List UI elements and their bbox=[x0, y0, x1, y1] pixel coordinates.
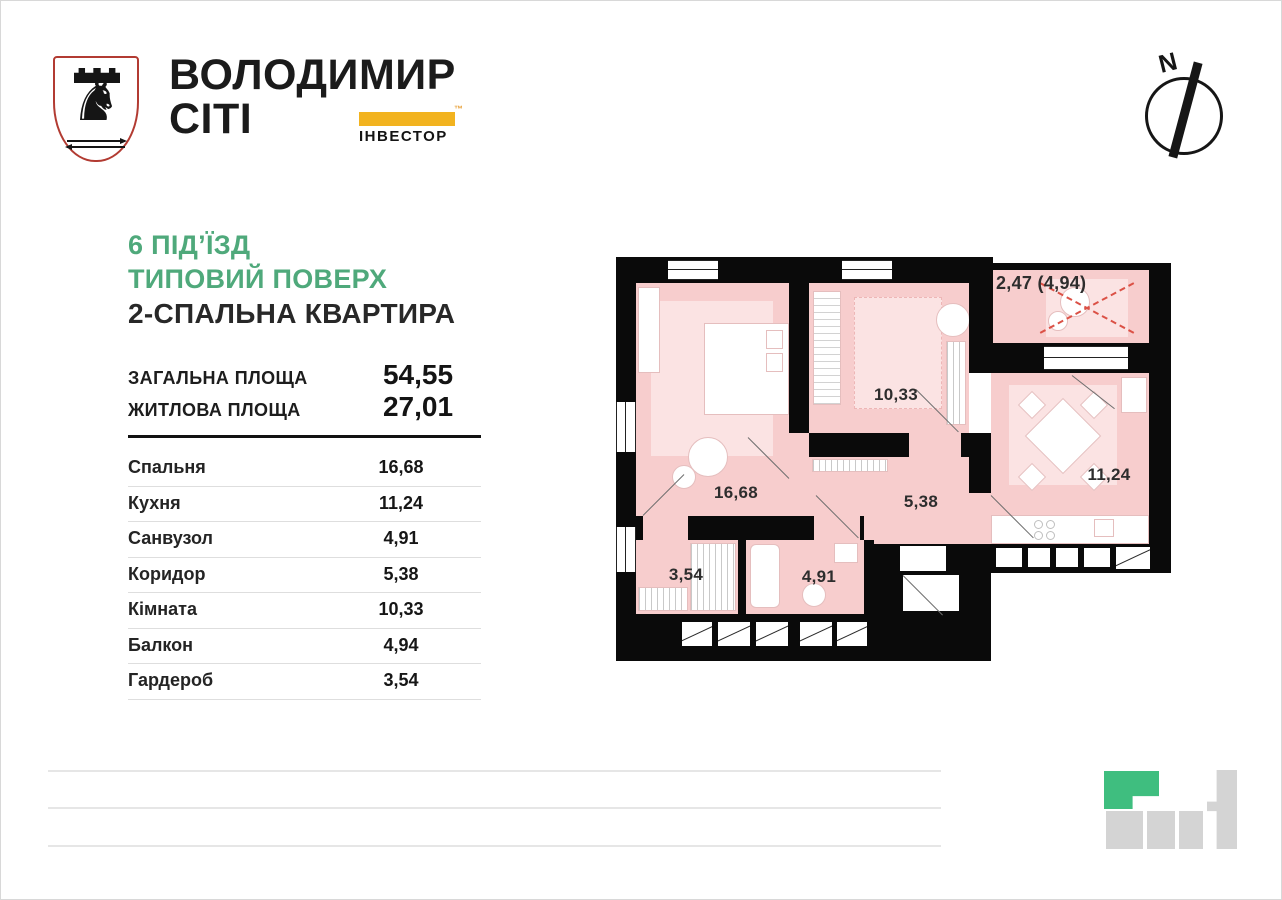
vent bbox=[1028, 548, 1050, 567]
window bbox=[842, 260, 892, 280]
wall bbox=[993, 263, 1171, 270]
living-room-chair bbox=[936, 303, 970, 337]
table-row: Гардероб 3,54 bbox=[128, 664, 481, 700]
plan-detail bbox=[1034, 531, 1043, 540]
plan-detail bbox=[1046, 520, 1055, 529]
living-area-value: 27,01 bbox=[363, 391, 473, 423]
room-name: Коридор bbox=[128, 558, 205, 591]
bed-pillow bbox=[766, 353, 783, 372]
vent bbox=[996, 548, 1022, 567]
wall bbox=[789, 283, 809, 433]
fridge bbox=[1121, 377, 1147, 413]
wall bbox=[616, 257, 636, 402]
floor-plan-drawing: 16,68 10,33 2,47 (4,94) 11,24 5,38 3,54 … bbox=[616, 257, 1171, 661]
north-compass: N bbox=[1141, 47, 1237, 163]
corridor-area-label: 5,38 bbox=[871, 492, 971, 512]
plan-detail bbox=[1046, 531, 1055, 540]
total-area-value: 54,55 bbox=[363, 359, 473, 391]
room-name: Санвузол bbox=[128, 522, 213, 555]
wall bbox=[809, 257, 976, 283]
shaft bbox=[718, 622, 750, 646]
wall bbox=[616, 452, 636, 527]
wall bbox=[738, 540, 746, 614]
room-area-value: 4,91 bbox=[346, 522, 456, 555]
balcony-door bbox=[1044, 346, 1128, 370]
vent bbox=[1084, 548, 1110, 567]
hallway-cabinet bbox=[812, 459, 888, 472]
entrance-landing bbox=[903, 575, 959, 611]
table-row: Кухня 11,24 bbox=[128, 487, 481, 523]
note-line bbox=[48, 770, 941, 772]
toilet bbox=[834, 543, 858, 563]
room-name: Спальня bbox=[128, 451, 206, 484]
wall bbox=[969, 433, 991, 493]
room-area-value: 4,94 bbox=[346, 629, 456, 662]
room-name: Кімната bbox=[128, 593, 197, 626]
arrow-left-icon bbox=[67, 146, 125, 148]
shaft bbox=[1116, 547, 1150, 569]
entrance-opening bbox=[900, 546, 946, 571]
balcony-area-label: 2,47 (4,94) bbox=[996, 273, 1126, 294]
room-area-value: 10,33 bbox=[346, 593, 456, 626]
vent bbox=[1056, 548, 1078, 567]
room-area-value: 3,54 bbox=[346, 664, 456, 697]
table-row: Коридор 5,38 bbox=[128, 558, 481, 594]
table-row: Балкон 4,94 bbox=[128, 629, 481, 665]
logo-gray-block bbox=[1106, 811, 1143, 849]
apartment-info-panel: 6 ПІД’ЇЗД ТИПОВИЙ ПОВЕРХ 2-СПАЛЬНА КВАРТ… bbox=[128, 1, 481, 721]
room-area-value: 11,24 bbox=[346, 487, 456, 520]
total-area-label: ЗАГАЛЬНА ПЛОЩА bbox=[128, 363, 308, 393]
shaft bbox=[756, 622, 788, 646]
bedroom-cabinet bbox=[638, 287, 660, 373]
entrance-title: 6 ПІД’ЇЗД bbox=[128, 229, 250, 262]
window bbox=[616, 527, 636, 572]
bedroom-area-label: 16,68 bbox=[686, 483, 786, 503]
floor-title: ТИПОВИЙ ПОВЕРХ bbox=[128, 263, 387, 296]
logo-green-block bbox=[1104, 771, 1159, 809]
brand-crest: ♞ bbox=[53, 56, 139, 162]
living-room-wardrobe bbox=[946, 341, 966, 425]
logo-gray-block bbox=[1179, 811, 1203, 849]
room-name: Гардероб bbox=[128, 664, 213, 697]
logo-gray-block bbox=[1147, 811, 1175, 849]
bed-pillow bbox=[766, 330, 783, 349]
wall bbox=[961, 433, 969, 457]
kitchen-sink bbox=[1094, 519, 1114, 537]
room-area-value: 16,68 bbox=[346, 451, 456, 484]
table-row: Санвузол 4,91 bbox=[128, 522, 481, 558]
footer-blocks-logo bbox=[1101, 766, 1231, 848]
logo-tall-block bbox=[1207, 770, 1237, 849]
wardrobe-area-label: 3,54 bbox=[636, 565, 736, 585]
living-area-label: ЖИТЛОВА ПЛОЩА bbox=[128, 395, 301, 425]
kitchen-doorway bbox=[969, 493, 991, 544]
door-opening bbox=[814, 516, 860, 540]
kitchen-area-label: 11,24 bbox=[1059, 465, 1159, 485]
window bbox=[668, 260, 718, 280]
horse-icon: ♞ bbox=[61, 70, 131, 132]
window bbox=[616, 402, 636, 452]
room-name: Балкон bbox=[128, 629, 193, 662]
door-opening bbox=[643, 516, 688, 540]
bedroom-doorway bbox=[789, 433, 809, 516]
room-area-table: Спальня 16,68 Кухня 11,24 Санвузол 4,91 … bbox=[128, 451, 481, 700]
wardrobe-shelf bbox=[638, 587, 688, 611]
living-room-area-label: 10,33 bbox=[846, 385, 946, 405]
apartment-title: 2-СПАЛЬНА КВАРТИРА bbox=[128, 297, 455, 330]
room-area-value: 5,38 bbox=[346, 558, 456, 591]
table-row: Кімната 10,33 bbox=[128, 593, 481, 629]
plan-detail bbox=[1034, 520, 1043, 529]
wall bbox=[809, 433, 909, 457]
arrow-right-icon bbox=[67, 140, 125, 142]
wall bbox=[616, 572, 636, 614]
shaft bbox=[682, 622, 712, 646]
compass-north-label: N bbox=[1156, 47, 1181, 80]
shaft bbox=[837, 622, 867, 646]
note-line bbox=[48, 845, 941, 847]
living-room-sofa bbox=[813, 291, 841, 405]
bathroom-area-label: 4,91 bbox=[769, 567, 869, 587]
note-line bbox=[48, 807, 941, 809]
shaft bbox=[800, 622, 832, 646]
table-row: Спальня 16,68 bbox=[128, 451, 481, 487]
floor-plan-sheet: ♞ ВОЛОДИМИР СІТІ ™ ІНВЕСТОР N 6 ПІД’ЇЗД … bbox=[0, 0, 1282, 900]
room-name: Кухня bbox=[128, 487, 181, 520]
table-divider bbox=[128, 435, 481, 438]
